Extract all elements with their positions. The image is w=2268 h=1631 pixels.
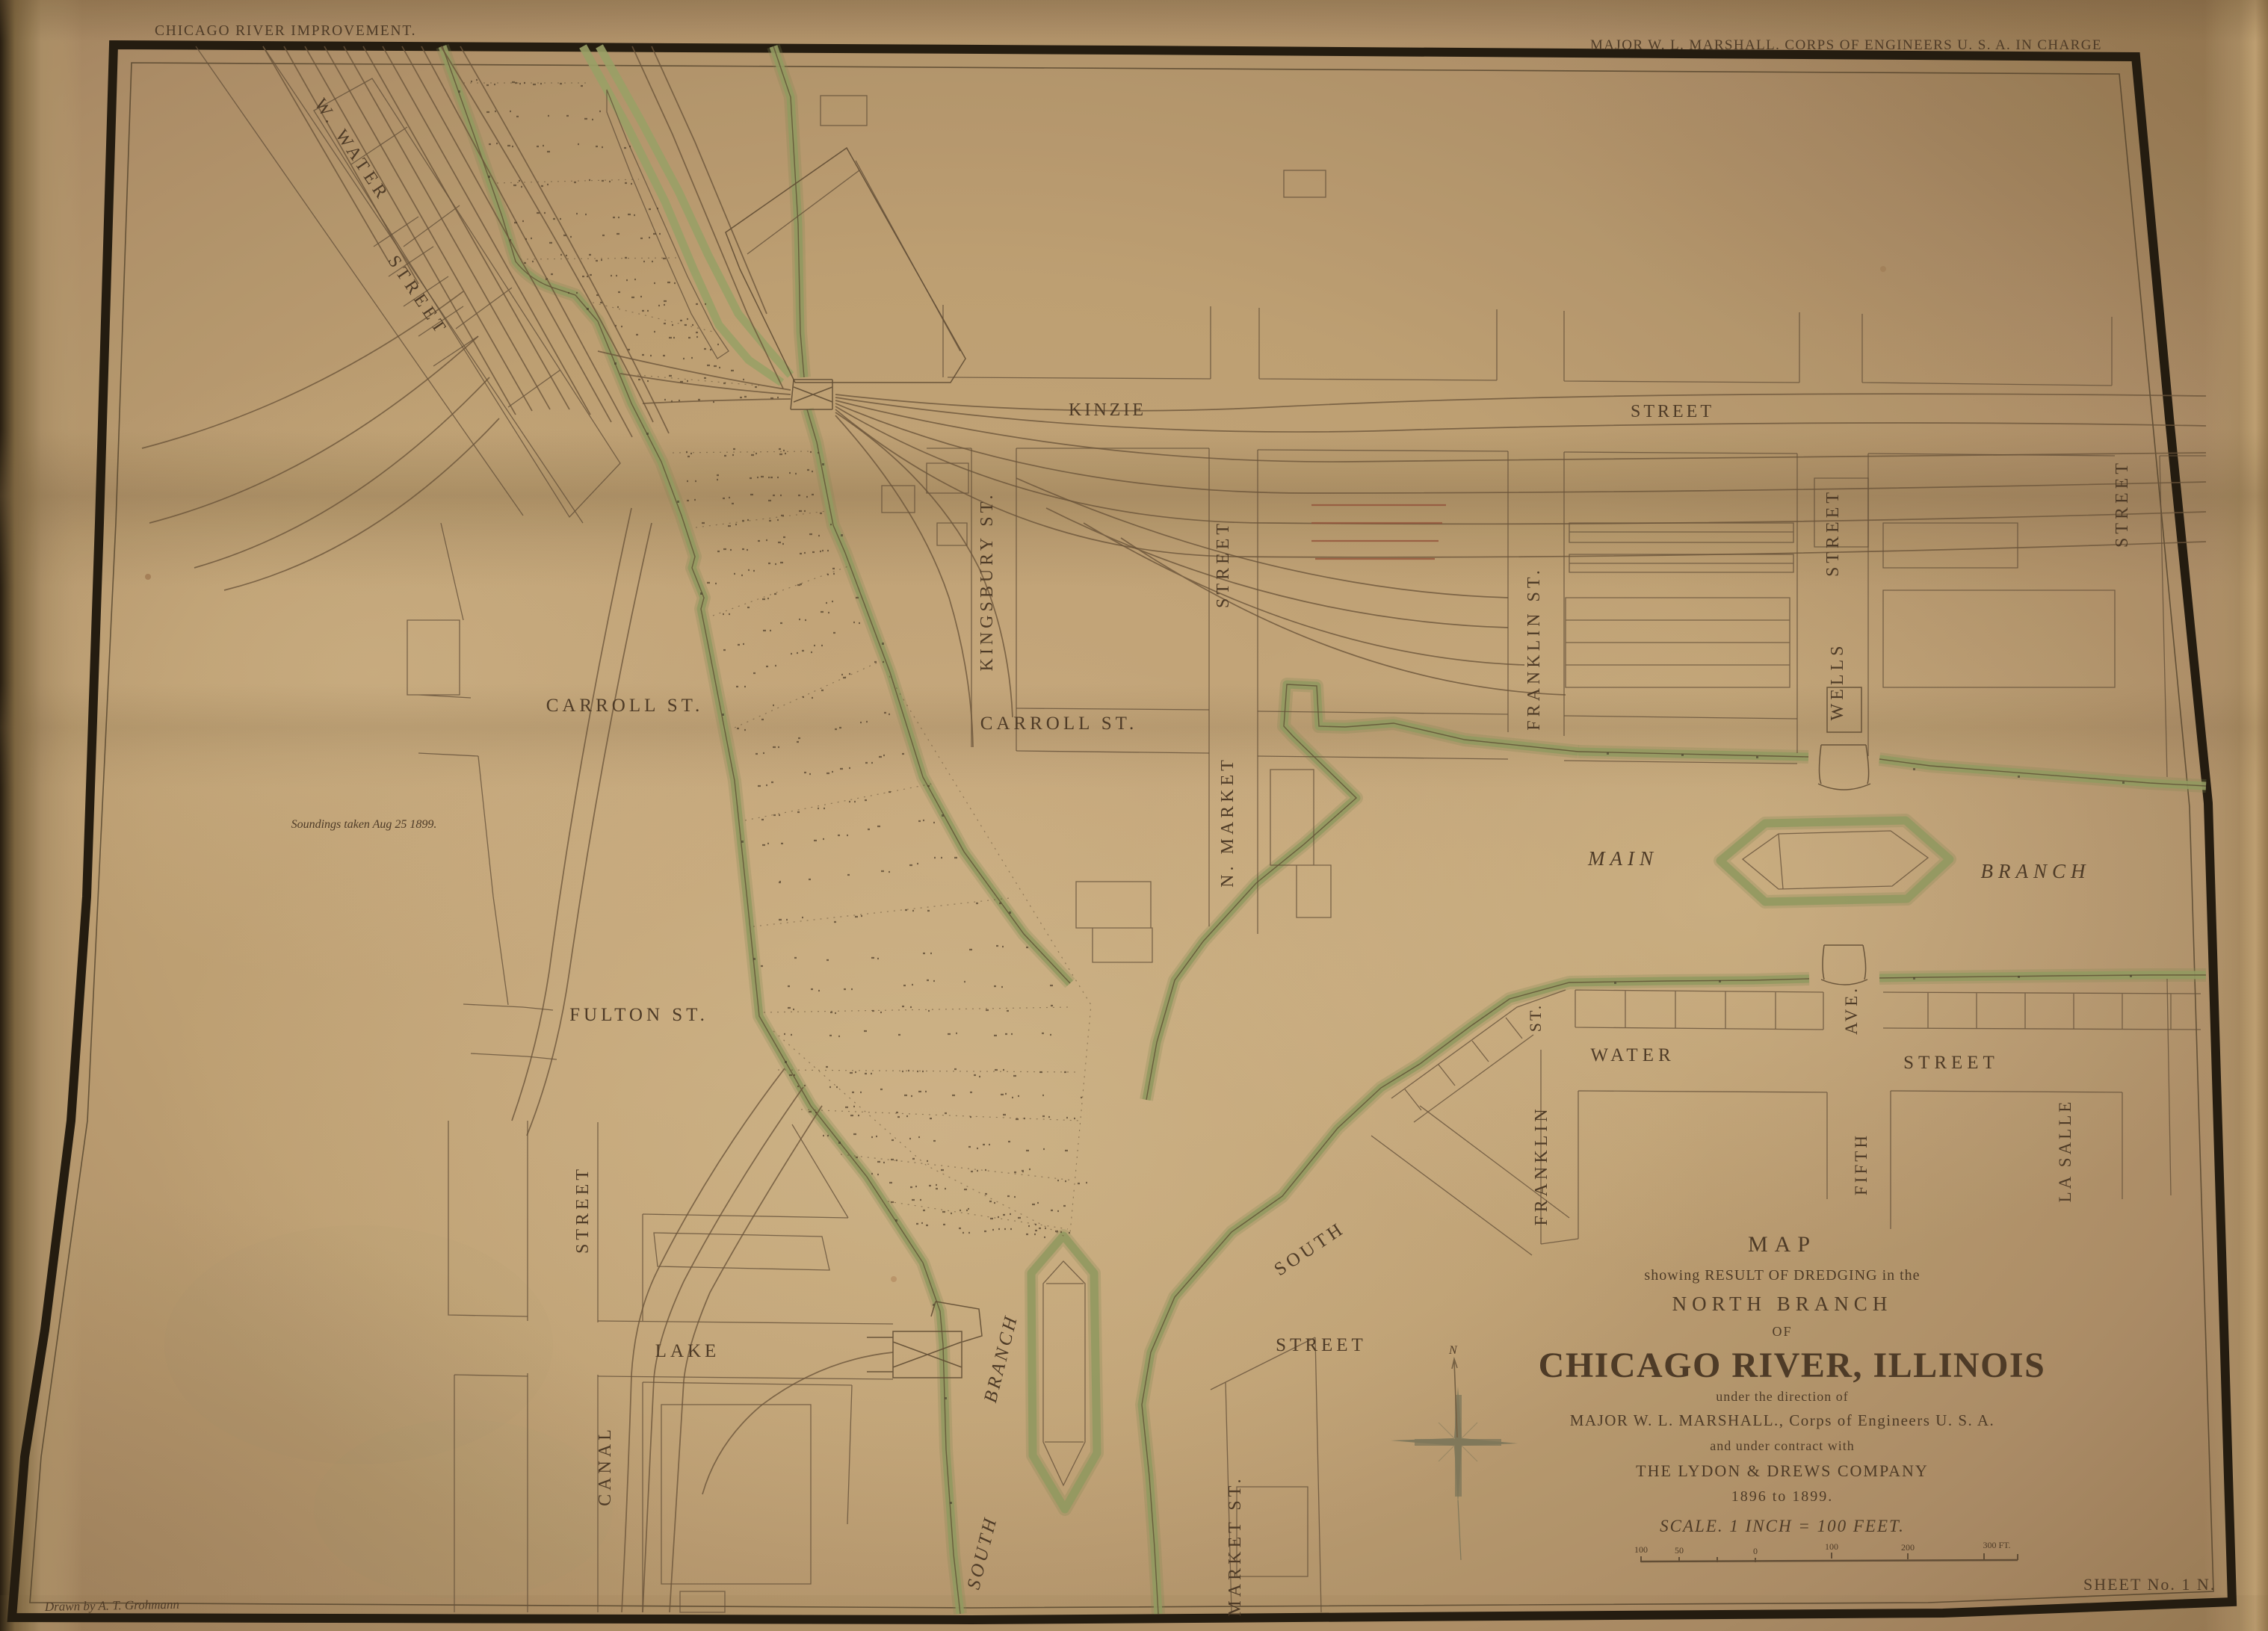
svg-text:MARKET ST.: MARKET ST.: [1226, 1475, 1245, 1616]
svg-text:FRANKLIN: FRANKLIN: [1532, 1105, 1551, 1225]
svg-text:CHICAGO RIVER IMPROVEMENT.: CHICAGO RIVER IMPROVEMENT.: [155, 23, 416, 39]
svg-text:0: 0: [1753, 1546, 1758, 1556]
svg-text:FRANKLIN ST.: FRANKLIN ST.: [1524, 566, 1544, 731]
svg-text:KINGSBURY ST.: KINGSBURY ST.: [977, 491, 997, 671]
svg-text:CANAL: CANAL: [596, 1426, 615, 1506]
svg-text:MAJOR W. L. MARSHALL., Cor: MAJOR W. L. MARSHALL., Corps of Engineer…: [1570, 1411, 1995, 1429]
svg-text:SHEET No. 1 N.: SHEET No. 1 N.: [2083, 1575, 2216, 1594]
svg-text:N: N: [1448, 1344, 1458, 1357]
svg-text:WATER: WATER: [1590, 1045, 1675, 1065]
svg-text:1896 to 1899.: 1896 to 1899.: [1731, 1488, 1834, 1505]
svg-text:N. MARKET: N. MARKET: [1218, 756, 1237, 888]
svg-text:300 FT.: 300 FT.: [1983, 1540, 2010, 1550]
svg-text:50: 50: [1675, 1545, 1684, 1556]
svg-text:STREET: STREET: [573, 1166, 593, 1254]
svg-text:MAIN: MAIN: [1587, 847, 1658, 870]
svg-text:under the direction of: under the direction of: [1716, 1389, 1848, 1404]
svg-text:OF: OF: [1772, 1324, 1792, 1339]
svg-text:200: 200: [1901, 1542, 1915, 1553]
svg-text:NORTH BRANCH: NORTH BRANCH: [1672, 1293, 1893, 1315]
svg-text:CARROLL ST.: CARROLL ST.: [546, 696, 704, 716]
svg-text:STREET: STREET: [1823, 489, 1843, 577]
svg-text:Drawn by A. T. Grohmann: Drawn by A. T. Grohmann: [44, 1597, 179, 1614]
svg-text:THE LYDON & DREWS COMPANY: THE LYDON & DREWS COMPANY: [1636, 1461, 1929, 1480]
svg-text:LAKE: LAKE: [655, 1341, 720, 1361]
svg-text:and under contract with: and under contract with: [1710, 1438, 1854, 1453]
svg-text:FULTON ST.: FULTON ST.: [569, 1005, 708, 1025]
svg-text:KINZIE: KINZIE: [1069, 400, 1146, 420]
svg-text:100: 100: [1634, 1544, 1648, 1555]
svg-text:100: 100: [1825, 1541, 1838, 1552]
svg-text:STREET: STREET: [1903, 1053, 1999, 1073]
svg-text:MAJOR W. L. MARSHALL. CORPS O: MAJOR W. L. MARSHALL. CORPS OF ENGINEERS…: [1590, 37, 2102, 53]
svg-text:MAP: MAP: [1748, 1232, 1817, 1257]
svg-text:FIFTH: FIFTH: [1852, 1133, 1870, 1195]
svg-text:STREET: STREET: [2113, 459, 2132, 548]
svg-text:Soundings taken Aug 25 1899.: Soundings taken Aug 25 1899.: [291, 818, 437, 831]
svg-text:AVE.: AVE.: [1842, 985, 1861, 1035]
svg-text:BRANCH: BRANCH: [1981, 860, 2091, 882]
svg-text:STREET: STREET: [1631, 402, 1714, 421]
svg-text:CHICAGO RIVER, ILLINOIS: CHICAGO RIVER, ILLINOIS: [1539, 1346, 2046, 1385]
svg-text:SCALE. 1 INCH = 100 FEET.: SCALE. 1 INCH = 100 FEET.: [1660, 1517, 1905, 1535]
svg-text:STREET: STREET: [1214, 520, 1233, 608]
svg-text:LA SALLE: LA SALLE: [2056, 1099, 2074, 1203]
svg-text:ST.: ST.: [1526, 1003, 1545, 1033]
svg-text:STREET: STREET: [1276, 1335, 1367, 1355]
svg-text:CARROLL ST.: CARROLL ST.: [980, 714, 1138, 734]
svg-text:WELLS: WELLS: [1828, 643, 1847, 721]
svg-text:showing RESULT OF DREDGING in: showing RESULT OF DREDGING in the: [1644, 1267, 1920, 1284]
